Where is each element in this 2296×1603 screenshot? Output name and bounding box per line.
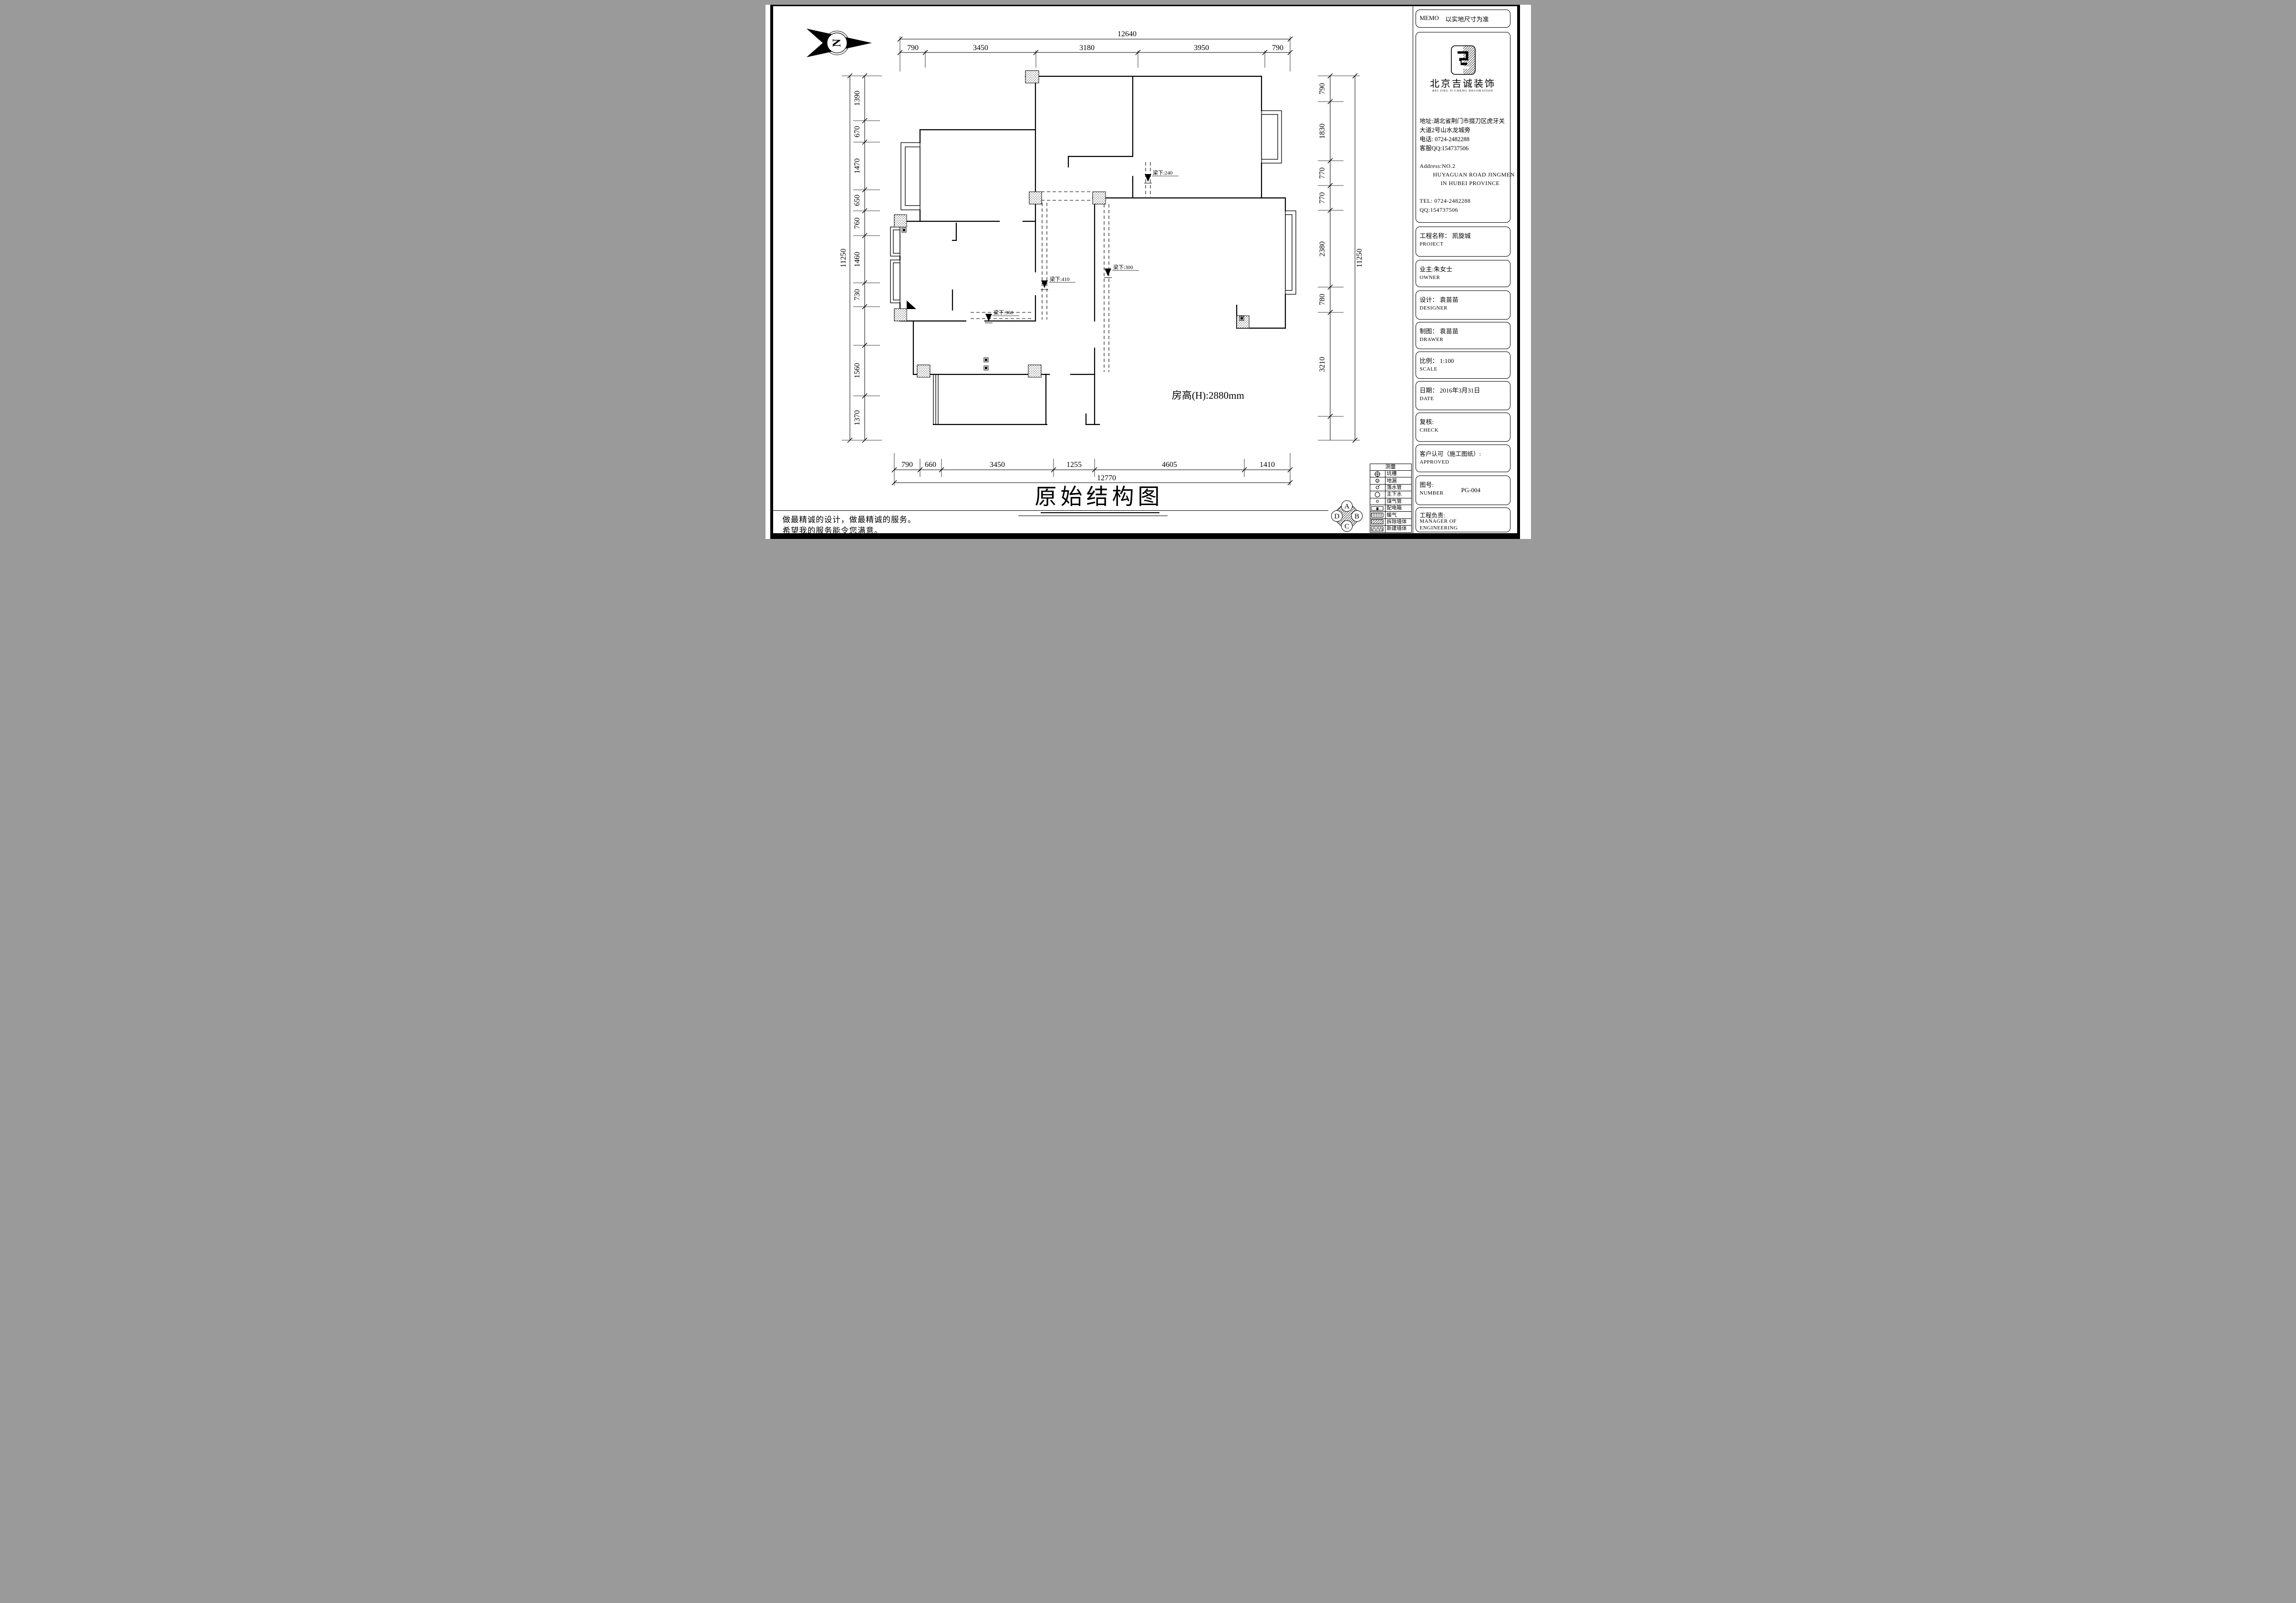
- project-name: 工程名称： 凯旋城: [1420, 231, 1471, 240]
- approved-box: 客户认可（施工图纸）: APPROVED: [1416, 445, 1510, 472]
- window-bays: [890, 111, 1296, 424]
- dim-label: 3210: [1318, 357, 1326, 372]
- dim-overall-left: 11250: [839, 248, 848, 267]
- dim-label: 780: [1318, 294, 1326, 305]
- dim-label: 660: [925, 461, 936, 469]
- dimension-extensions: [842, 36, 1360, 486]
- dim-label: 790: [1318, 83, 1326, 94]
- number-box: 图号: NUMBER PG-004: [1416, 476, 1510, 505]
- walls: [900, 76, 1285, 424]
- legend-table: 测量 坑槽 地漏 落水管 主下水 煤气管 配电箱 暖气: [1370, 464, 1412, 533]
- distribution-box-icon: [1371, 506, 1384, 511]
- dimension-labels: 12640 790 3450 3180 3950 790 12770 790 6…: [839, 30, 1364, 482]
- beam-note: 梁下:360: [993, 309, 1014, 316]
- owner-label-en: OWNER: [1420, 275, 1440, 280]
- dim-label: 1830: [1318, 124, 1326, 139]
- legend-row: 新建墙体: [1370, 525, 1411, 532]
- company-tel-en: TEL: 0724-2482288: [1420, 197, 1471, 205]
- manager-label-en-2: ENGINEERING: [1420, 525, 1458, 531]
- memo-label: MEMO: [1420, 14, 1439, 22]
- company-box: 北京吉诚装饰 BEI JING JI CHENG DECORATION 地址:湖…: [1416, 32, 1510, 223]
- north-arrow-icon: N: [807, 29, 872, 57]
- frame-left: [770, 5, 773, 539]
- number-label: 图号:: [1420, 480, 1434, 489]
- drawer-box: 制图： 袁苗苗 DRAWER: [1416, 322, 1510, 349]
- dim-label: 760: [853, 217, 861, 229]
- drawing-title: 原始结构图: [980, 486, 1219, 508]
- approved-label: 客户认可（施工图纸）:: [1420, 449, 1481, 458]
- room-height-note: 房高(H):2880mm: [1172, 390, 1244, 401]
- company-address-1: 地址:湖北省荆门市掇刀区虎牙关: [1420, 116, 1505, 125]
- abcd-stamp-icon: A B C D: [1331, 500, 1363, 532]
- designer-label-en: DESIGNER: [1420, 305, 1448, 311]
- dim-label: 1460: [853, 252, 861, 267]
- dim-label: 3450: [973, 44, 988, 52]
- north-letter: N: [831, 39, 843, 47]
- new-wall-icon: [1371, 526, 1384, 532]
- dim-label: 1410: [1260, 461, 1275, 469]
- drawing-number: PG-004: [1461, 486, 1480, 494]
- footer-line: [773, 510, 1328, 511]
- slogan-line-2: 希望我的服务能令您满意。: [783, 524, 883, 536]
- beam-markers: 梁下:240 梁下:300 梁下:410 梁下:360: [985, 169, 1179, 323]
- dim-label: 1560: [853, 363, 861, 378]
- gas-pipe-icon: [1371, 498, 1384, 504]
- company-address-2: 大道2号山水龙城旁: [1420, 125, 1470, 134]
- main-drain-icon: [1371, 492, 1384, 497]
- demolished-wall-icon: [1371, 519, 1384, 525]
- legend-row: 落水管: [1370, 484, 1411, 491]
- manager-box: 工程负责: MANAGER OF ENGINEERING: [1416, 507, 1510, 532]
- floor-drain-icon: [1371, 478, 1384, 484]
- memo-box: MEMO 以实地尺寸为准: [1416, 10, 1510, 28]
- dim-overall-top: 12640: [1117, 30, 1137, 38]
- legend-row: 坑槽: [1370, 470, 1411, 477]
- memo-note: 以实地尺寸为准: [1446, 14, 1489, 23]
- dim-label: 3180: [1079, 44, 1095, 52]
- date-label-en: DATE: [1420, 396, 1434, 402]
- dim-label: 1470: [853, 158, 861, 174]
- company-address-en-3: IN HUBEI PROVINCE: [1441, 180, 1500, 187]
- dim-label: 790: [907, 44, 919, 52]
- beam-note: 梁下:240: [1153, 169, 1173, 176]
- dim-label: 1370: [853, 410, 861, 425]
- project-box: 工程名称： 凯旋城 PROJECT: [1416, 227, 1510, 257]
- dim-label: 770: [1318, 192, 1326, 204]
- dim-label: 770: [1318, 167, 1326, 179]
- dim-label: 670: [853, 126, 861, 137]
- columns: [894, 71, 1249, 377]
- manager-label-en-1: MANAGER OF: [1420, 518, 1457, 524]
- drawer-name: 制图： 袁苗苗: [1420, 326, 1458, 335]
- stamp-letter-d: D: [1334, 513, 1339, 520]
- beam-note: 梁下:410: [1050, 276, 1070, 282]
- legend-row: 暖气: [1370, 511, 1411, 518]
- slogan-line-1: 做最精诚的设计，做最精诚的服务。: [783, 513, 916, 525]
- legend-row: 地漏: [1370, 477, 1411, 484]
- company-address-en-2: HUYAGUAN ROAD JINGMEN: [1433, 171, 1515, 178]
- plan-symbols: [902, 228, 1244, 370]
- dim-label: 790: [901, 461, 913, 469]
- company-phone: 电话: 0724-2482288: [1420, 134, 1470, 143]
- titleblock-separator: [1413, 6, 1414, 533]
- stamp-letter-a: A: [1344, 503, 1349, 510]
- drawing-title-underline-2: [1018, 516, 1168, 516]
- dim-label: 650: [853, 195, 861, 206]
- legend-row: 煤气管: [1370, 498, 1411, 505]
- dim-label: 730: [853, 289, 861, 300]
- dim-label: 3450: [990, 461, 1005, 469]
- owner-name: 业主:朱女士: [1420, 264, 1453, 273]
- dimension-lines: [850, 39, 1355, 483]
- approved-label-en: APPROVED: [1420, 459, 1449, 465]
- check-box: 复核: CHECK: [1416, 413, 1510, 442]
- scale-label-en: SCALE: [1420, 366, 1438, 372]
- check-label: 复核:: [1420, 417, 1434, 426]
- frame-top: [770, 5, 1520, 6]
- legend-row: 拆除墙体: [1370, 518, 1411, 525]
- dim-overall-bottom: 12770: [1097, 474, 1116, 482]
- radiator-icon: [1371, 512, 1384, 518]
- company-name-en: BEI JING JI CHENG DECORATION: [1416, 89, 1510, 93]
- stamp-letter-b: B: [1354, 513, 1359, 520]
- legend-header: 测量: [1370, 464, 1411, 470]
- check-label-en: CHECK: [1420, 427, 1439, 433]
- dim-label: 790: [1272, 44, 1283, 52]
- legend-row: 配电箱: [1370, 505, 1411, 511]
- project-label-en: PROJECT: [1420, 241, 1444, 247]
- drawing-title-underline: [1041, 512, 1159, 513]
- drawing-sheet: N: [765, 5, 1531, 539]
- stamp-letter-c: C: [1344, 523, 1349, 530]
- company-qq: 客服QQ:154737506: [1420, 143, 1469, 152]
- dim-label: 1255: [1066, 461, 1082, 469]
- company-logo-icon: [1450, 45, 1476, 75]
- date-box: 日期： 2016年3月31日 DATE: [1416, 381, 1510, 410]
- owner-box: 业主:朱女士 OWNER: [1416, 260, 1510, 287]
- frame-right: [1517, 5, 1520, 539]
- dim-label: 2380: [1318, 241, 1326, 257]
- dimension-ticks: [848, 37, 1357, 485]
- company-qq-en: QQ:154737506: [1420, 207, 1458, 214]
- number-label-en: NUMBER: [1420, 490, 1444, 496]
- dim-overall-right: 11250: [1355, 248, 1364, 267]
- scale-box: 比例： 1:100 SCALE: [1416, 352, 1510, 379]
- drawer-label-en: DRAWER: [1420, 337, 1444, 342]
- dim-label: 1390: [853, 91, 861, 106]
- legend-row: 主下水: [1370, 491, 1411, 497]
- dim-label: 3950: [1194, 44, 1209, 52]
- downpipe-icon: [1371, 485, 1384, 490]
- designer-name: 设计： 袁苗苗: [1420, 295, 1458, 304]
- beam-note: 梁下:300: [1113, 264, 1133, 270]
- scale-value: 比例： 1:100: [1420, 356, 1454, 365]
- pit-marker-icon: [1371, 471, 1384, 477]
- company-name: 北京吉诚装饰: [1416, 76, 1510, 90]
- designer-box: 设计： 袁苗苗 DESIGNER: [1416, 290, 1510, 320]
- date-value: 日期： 2016年3月31日: [1420, 385, 1480, 394]
- dim-label: 4605: [1162, 461, 1177, 469]
- company-address-en-1: Address:NO.2: [1420, 163, 1456, 170]
